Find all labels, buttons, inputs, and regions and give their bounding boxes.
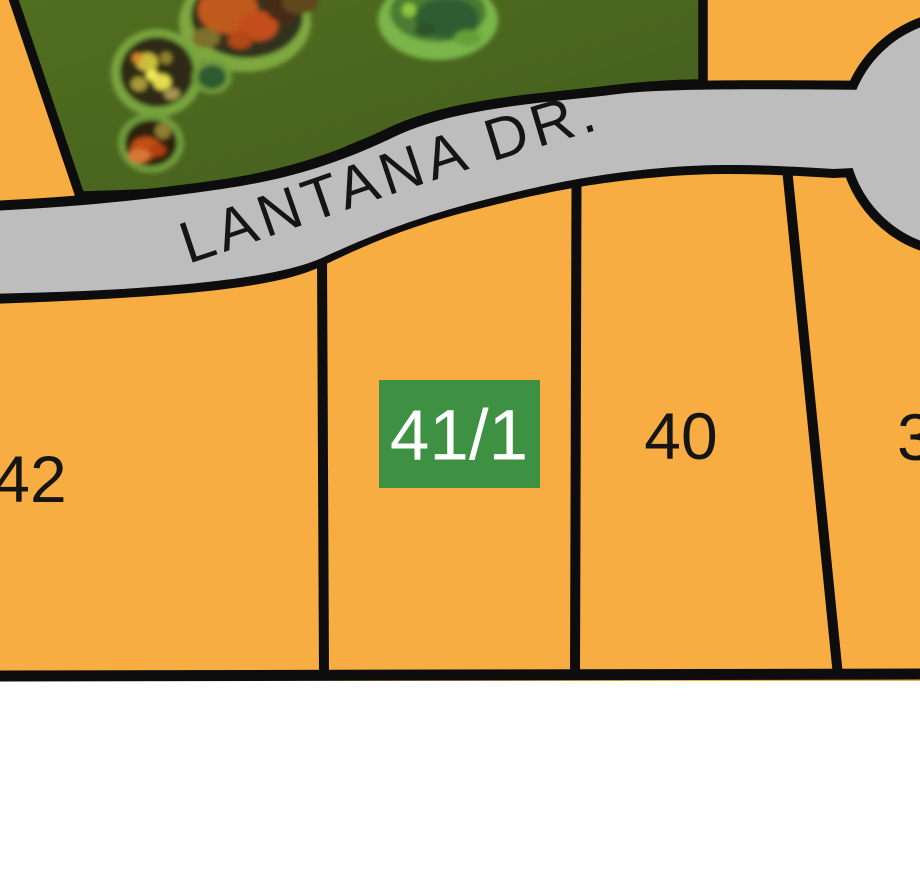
- lot-42-label: 42: [0, 442, 67, 516]
- lot-41-1-label: 41/1: [390, 397, 528, 476]
- lot-41-1-highlight: 41/1: [379, 380, 540, 488]
- map-canvas: LANTANA DR. 42 40 39 41/1: [0, 0, 920, 870]
- lot-39-label: 39: [897, 400, 920, 474]
- lot-40-label: 40: [644, 399, 717, 473]
